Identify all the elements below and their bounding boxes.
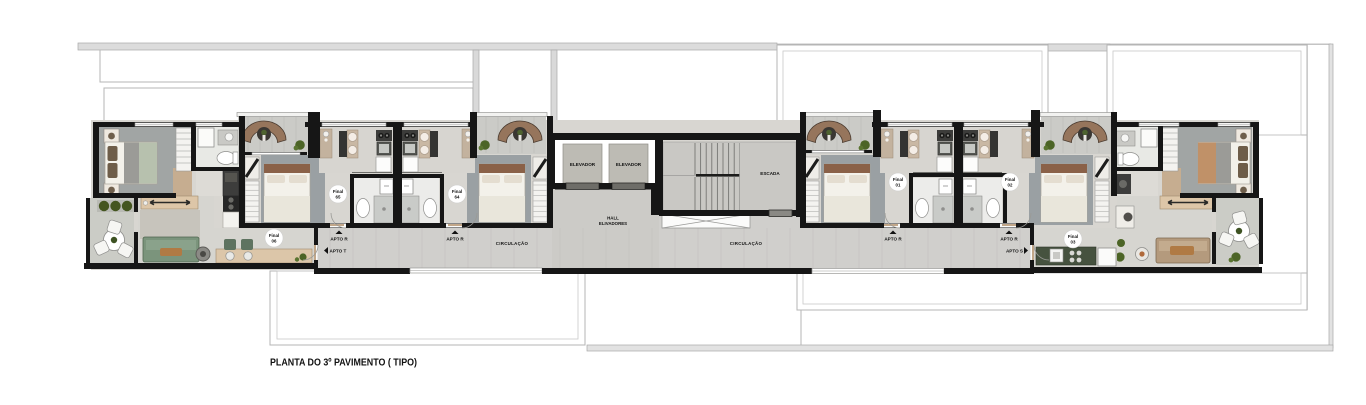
svg-text:Final: Final	[1005, 177, 1015, 182]
svg-text:ELIVADORES: ELIVADORES	[599, 221, 627, 226]
svg-text:APTO R: APTO R	[446, 237, 464, 242]
svg-text:ESCADA: ESCADA	[760, 171, 780, 176]
svg-text:02: 02	[1008, 183, 1013, 188]
svg-text:APTO R: APTO R	[330, 237, 348, 242]
svg-text:APTO R: APTO R	[1000, 237, 1018, 242]
svg-text:APTO S: APTO S	[1006, 249, 1023, 254]
svg-text:HALL: HALL	[607, 216, 619, 221]
svg-text:Final: Final	[333, 189, 343, 194]
svg-text:01: 01	[896, 183, 901, 188]
svg-text:Final: Final	[1068, 234, 1078, 239]
svg-text:APTO R: APTO R	[884, 237, 902, 242]
svg-text:CIRCULAÇÃO: CIRCULAÇÃO	[496, 241, 529, 246]
svg-text:03: 03	[1071, 240, 1076, 245]
svg-text:ELEVADOR: ELEVADOR	[570, 162, 596, 167]
svg-text:PLANTA DO 3º PAVIMENTO ( TIPO: PLANTA DO 3º PAVIMENTO ( TIPO)	[270, 358, 417, 369]
svg-text:64: 64	[455, 195, 460, 200]
svg-text:Final: Final	[269, 233, 279, 238]
svg-text:APTO T: APTO T	[330, 249, 347, 254]
svg-text:CIRCULAÇÃO: CIRCULAÇÃO	[730, 241, 763, 246]
svg-text:Final: Final	[452, 189, 462, 194]
svg-text:Final: Final	[893, 177, 903, 182]
svg-text:65: 65	[336, 195, 341, 200]
svg-text:06: 06	[272, 239, 277, 244]
svg-text:ELEVADOR: ELEVADOR	[616, 162, 642, 167]
